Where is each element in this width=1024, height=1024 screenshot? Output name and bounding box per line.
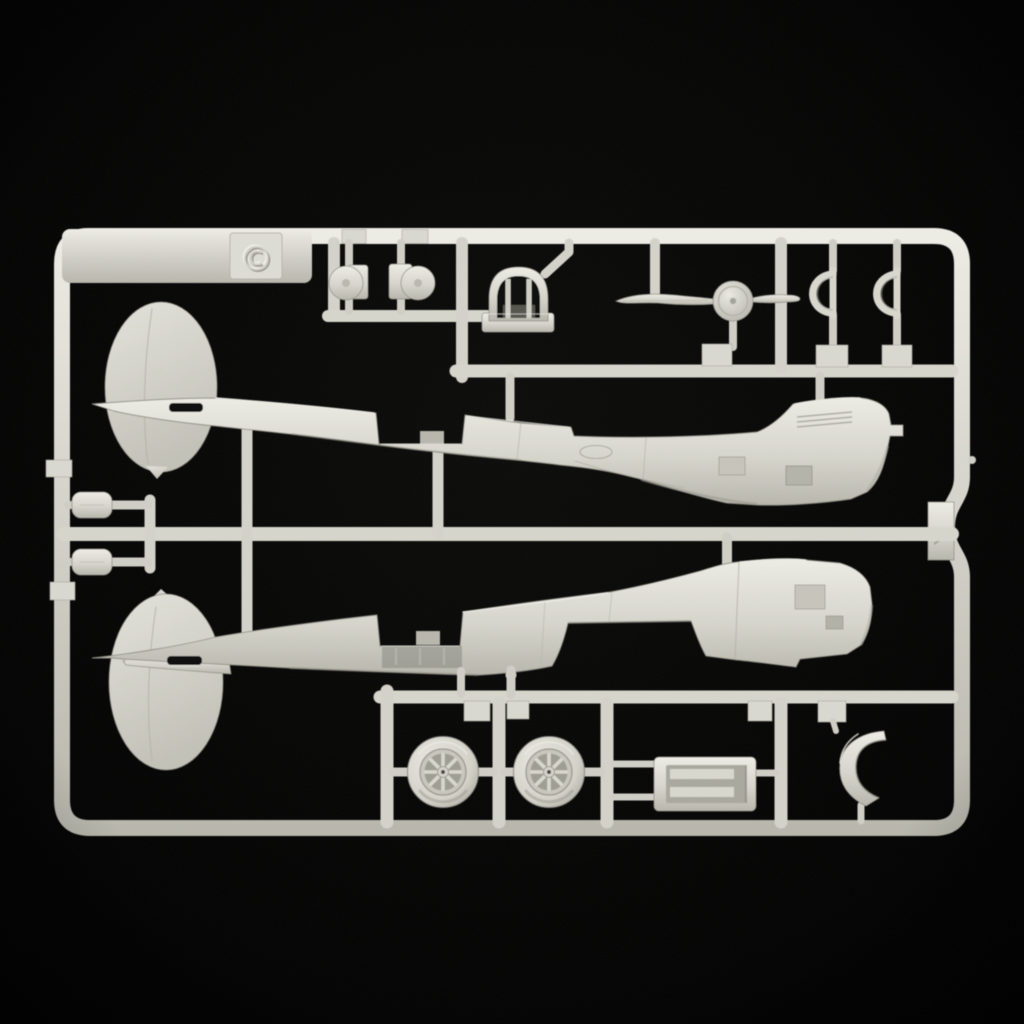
vignette xyxy=(0,0,1024,1024)
photo-stage: © © © xyxy=(0,0,1024,1024)
sprue-photo: © © © xyxy=(0,0,1024,1024)
